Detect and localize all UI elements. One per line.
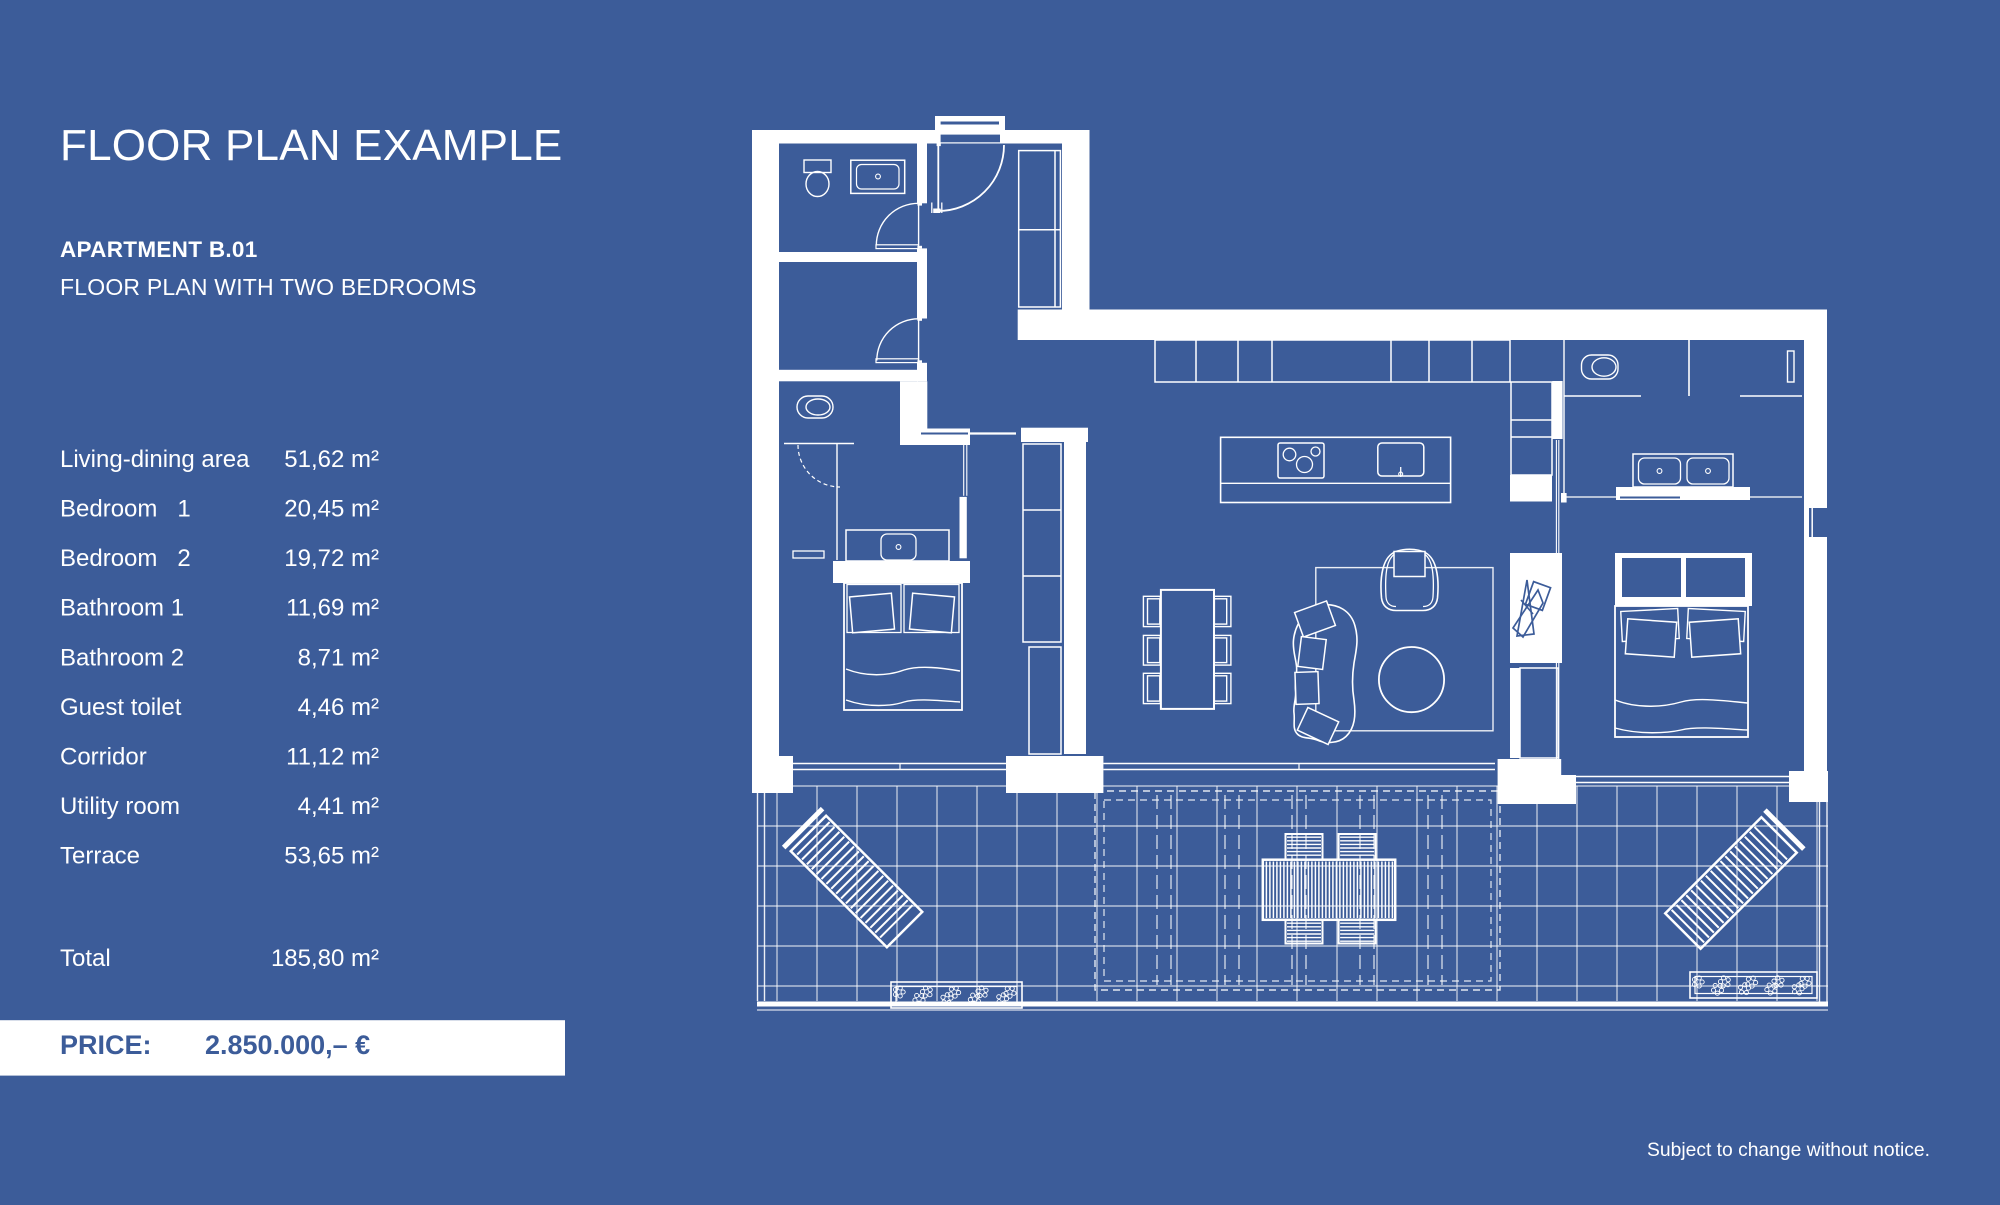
svg-text:2.850.000,– €: 2.850.000,– € <box>205 1030 370 1060</box>
svg-text:11,12 m²: 11,12 m² <box>286 743 379 770</box>
svg-text:53,65 m²: 53,65 m² <box>284 843 379 870</box>
svg-text:8,71 m²: 8,71 m² <box>298 644 379 671</box>
svg-text:20,45 m²: 20,45 m² <box>284 496 379 523</box>
svg-text:Total: Total <box>60 945 111 972</box>
svg-text:PRICE:: PRICE: <box>60 1030 152 1060</box>
svg-text:Living-dining area: Living-dining area <box>60 446 250 473</box>
svg-text:11,69 m²: 11,69 m² <box>286 595 379 622</box>
svg-text:19,72 m²: 19,72 m² <box>284 545 379 572</box>
svg-text:Bedroom 1: Bedroom 1 <box>60 496 191 523</box>
svg-text:Bedroom 2: Bedroom 2 <box>60 545 191 572</box>
svg-text:4,41 m²: 4,41 m² <box>298 793 379 820</box>
svg-text:4,46 m²: 4,46 m² <box>298 694 379 721</box>
svg-text:Terrace: Terrace <box>60 843 140 870</box>
svg-text:Corridor: Corridor <box>60 743 147 770</box>
svg-text:Subject to change without noti: Subject to change without notice. <box>1647 1140 1930 1161</box>
svg-text:Utility room: Utility room <box>60 793 180 820</box>
svg-text:Guest toilet: Guest toilet <box>60 694 182 721</box>
svg-text:FLOOR PLAN EXAMPLE: FLOOR PLAN EXAMPLE <box>60 121 562 170</box>
svg-text:Bathroom 1: Bathroom 1 <box>60 595 184 622</box>
svg-text:FLOOR PLAN WITH TWO BEDROOMS: FLOOR PLAN WITH TWO BEDROOMS <box>60 274 477 300</box>
svg-text:185,80 m²: 185,80 m² <box>271 945 379 972</box>
svg-text:Bathroom 2: Bathroom 2 <box>60 644 184 671</box>
svg-text:51,62 m²: 51,62 m² <box>284 446 379 473</box>
svg-text:APARTMENT B.01: APARTMENT B.01 <box>60 237 258 262</box>
